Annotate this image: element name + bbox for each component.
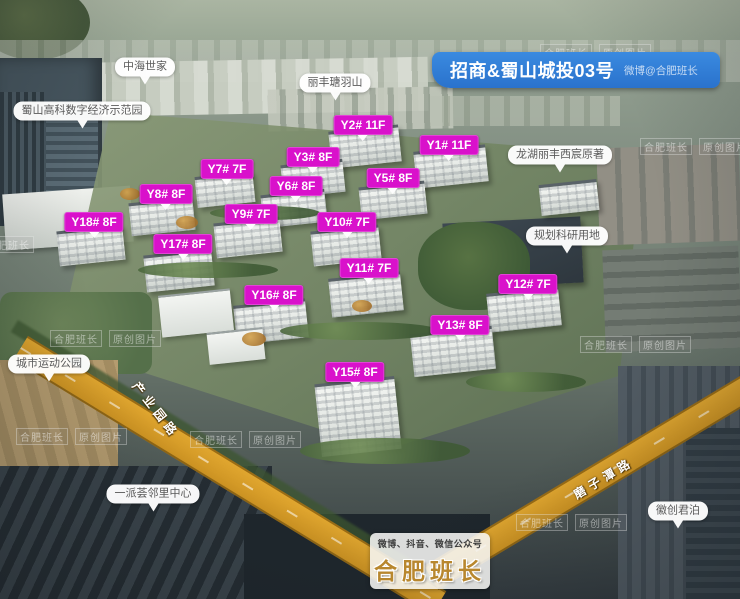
watermark-label: 原创图片 — [75, 428, 127, 445]
project-title: 招商&蜀山城投03号 — [450, 57, 614, 83]
brand-badge: 微博、抖音、微信公众号 合肥班长 — [370, 533, 490, 589]
watermark-label: 原创图片 — [575, 514, 627, 531]
building-label-y8: Y8# 8F — [140, 184, 193, 204]
building-label-y3: Y3# 8F — [287, 147, 340, 167]
tree-row — [300, 438, 470, 464]
landmark-label-neighborhood-center: 一派荟邻里中心 — [107, 485, 200, 504]
building-label-y13: Y13# 8F — [430, 315, 489, 335]
tree-row — [466, 372, 586, 392]
watermark-label: 原创图片 — [249, 431, 301, 448]
watermark-brand: 合肥班长 — [16, 428, 68, 445]
watermark: 合肥班长原创图片 — [640, 138, 740, 155]
building-label-y9: Y9# 7F — [225, 204, 278, 224]
title-banner: 招商&蜀山城投03号 微博@合肥班长 — [432, 52, 720, 88]
autumn-tree — [176, 216, 198, 229]
landmark-label-huichuang: 徽创君泊 — [648, 502, 708, 521]
building-unlabeled — [539, 179, 600, 216]
building-label-y6: Y6# 8F — [270, 176, 323, 196]
building-label-y17: Y17# 8F — [153, 234, 212, 254]
watermark-brand: 合肥班长 — [640, 138, 692, 155]
watermark-brand: 合肥班长 — [516, 514, 568, 531]
watermark: 合肥班长原创图片 — [16, 428, 127, 445]
landmark-label-lifeng: 丽丰瑭羽山 — [300, 74, 371, 93]
autumn-tree — [352, 300, 372, 312]
watermark: 合肥班长原创图片 — [580, 336, 691, 353]
watermark-brand: 合肥班长 — [580, 336, 632, 353]
autumn-tree — [242, 332, 266, 346]
landmark-label-shushan-park: 蜀山高科数字经济示范园 — [14, 102, 151, 121]
building-label-y5: Y5# 8F — [367, 168, 420, 188]
watermark-brand: 合肥班长 — [50, 330, 102, 347]
watermark: 合肥班长原创图片 — [190, 431, 301, 448]
landmark-label-research-land: 规划科研用地 — [526, 227, 608, 246]
bg-east-blocks — [596, 144, 740, 246]
tree-row — [280, 322, 440, 340]
building-label-y1: Y1# 11F — [420, 135, 479, 155]
watermark-label: 原创图片 — [699, 138, 740, 155]
building-label-y16: Y16# 8F — [244, 285, 303, 305]
aerial-site-map: 合肥班长原创图片 合肥班长原创图片 合肥班长 合肥班长原创图片 合肥班长原创图片… — [0, 0, 740, 599]
brand-channels: 微博、抖音、微信公众号 — [378, 537, 483, 550]
watermark-label: 原创图片 — [109, 330, 161, 347]
watermark: 合肥班长 — [0, 236, 34, 253]
weibo-credit: 微博@合肥班长 — [624, 63, 698, 78]
landmark-label-zhonghai: 中海世家 — [115, 58, 175, 77]
building-label-y12: Y12# 7F — [498, 274, 557, 294]
building-label-y7: Y7# 7F — [201, 159, 254, 179]
building-label-y18: Y18# 8F — [64, 212, 123, 232]
watermark-label: 原创图片 — [639, 336, 691, 353]
building-label-y11: Y11# 7F — [340, 258, 399, 278]
building-label-y10: Y10# 7F — [317, 212, 376, 232]
brand-name: 合肥班长 — [374, 552, 486, 586]
autumn-tree — [120, 188, 140, 200]
landmark-label-longhu: 龙湖丽丰西宸原著 — [508, 146, 612, 165]
tree-row — [138, 262, 278, 278]
landmark-label-sports-park: 城市运动公园 — [8, 355, 90, 374]
building-label-y2: Y2# 11F — [334, 115, 393, 135]
watermark-brand: 合肥班长 — [0, 236, 34, 253]
watermark: 合肥班长原创图片 — [516, 514, 627, 531]
watermark: 合肥班长原创图片 — [50, 330, 161, 347]
bg-right-far-block — [430, 96, 620, 126]
building-label-y15: Y15# 8F — [325, 362, 384, 382]
watermark-brand: 合肥班长 — [190, 431, 242, 448]
